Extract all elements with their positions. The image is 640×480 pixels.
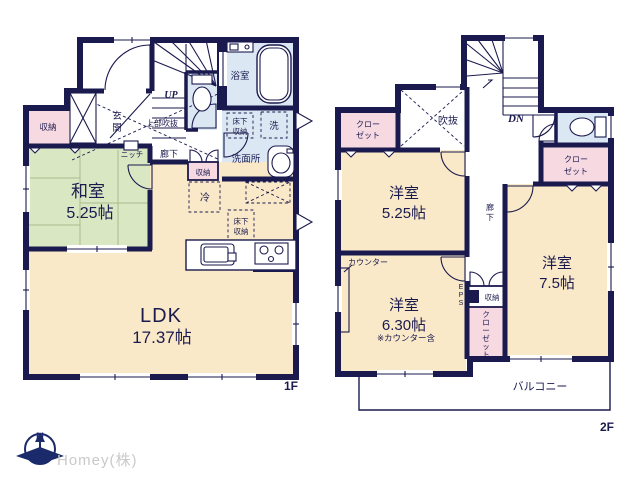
door-arrow-washroom xyxy=(296,112,312,130)
company-logo-text: Homey(株) xyxy=(57,452,138,469)
stairs-2f xyxy=(467,40,541,115)
closet-right-area xyxy=(541,147,611,183)
genkan-label-2: 関 xyxy=(112,123,122,134)
genkan-label-1: 玄 xyxy=(112,110,122,122)
niche-box xyxy=(124,141,138,150)
door-arrow-kitchen xyxy=(296,213,312,231)
washroom-label: 洗面所 xyxy=(232,153,261,165)
underfloor2-label-b: 収納 xyxy=(234,226,249,236)
fridge-label: 冷 xyxy=(200,191,210,204)
ldk-name: LDK xyxy=(140,305,182,327)
dn-label: DN xyxy=(507,113,525,125)
closet-v-label-6: ト xyxy=(482,350,490,359)
floorplan-drawing: 収納 玄 関 UP 上部吹抜 ニッチ 浴室 床下 収納 洗 洗面所 廊下 収納 … xyxy=(0,0,640,480)
counter-label: カウンター xyxy=(348,258,388,267)
toilet-2f-icon xyxy=(570,117,606,137)
toilet-1f-icon xyxy=(192,75,212,111)
underfloor2-label-a: 床下 xyxy=(234,216,249,226)
room525-size: 5.25帖 xyxy=(382,205,426,222)
floorplan-1f: 収納 玄 関 UP 上部吹抜 ニッチ 浴室 床下 収納 洗 洗面所 廊下 収納 … xyxy=(22,36,312,393)
storage-west-label: 収納 xyxy=(39,122,56,132)
closet-tl-label-2: ゼット xyxy=(356,130,380,140)
bath-label: 浴室 xyxy=(230,70,249,82)
closet-tl-area xyxy=(340,110,396,148)
ldk-size: 17.37帖 xyxy=(132,328,192,347)
washitsu-name: 和室 xyxy=(71,182,105,201)
room75-name: 洋室 xyxy=(542,255,572,272)
vanity-sink-icon xyxy=(268,146,294,177)
floorplan-2f: クロー ゼット 吹抜 DN クロー ゼット 洋室 5.25帖 廊 下 カウンター… xyxy=(334,34,615,434)
washitsu-size: 5.25帖 xyxy=(66,204,113,222)
floor-label-2f: 2F xyxy=(600,420,614,434)
up-label: UP xyxy=(164,90,178,101)
room75-size: 7.5帖 xyxy=(539,275,575,292)
eps-label-1: E xyxy=(459,284,464,291)
balcony-label: バルコニー xyxy=(513,380,568,393)
hallway-2f-label-2: 下 xyxy=(486,213,494,222)
floorplan-page: 収納 玄 関 UP 上部吹抜 ニッチ 浴室 床下 収納 洗 洗面所 廊下 収納 … xyxy=(0,0,640,480)
hallway-2f-label-1: 廊 xyxy=(486,202,494,212)
bathtub-icon xyxy=(257,45,291,103)
kitchen-counter xyxy=(186,240,296,270)
eps-label-2: P xyxy=(459,292,464,299)
compass-north-label: N xyxy=(36,431,44,443)
laundry-label: 洗 xyxy=(269,120,279,132)
eps-label-3: S xyxy=(459,300,464,307)
hall-closet-label: 収納 xyxy=(196,167,211,177)
room525-name: 洋室 xyxy=(389,185,419,202)
bath-counter-icon xyxy=(227,42,253,52)
room630-name: 洋室 xyxy=(389,297,419,314)
hallway-1f-label: 廊下 xyxy=(160,148,178,159)
closet-tl-label-1: クロー xyxy=(356,120,380,129)
room630-note: ※カウンター含 xyxy=(377,333,436,343)
underfloor1-label-a: 床下 xyxy=(233,116,248,126)
floor-label-1f: 1F xyxy=(284,379,298,393)
storage-2f-label: 収納 xyxy=(485,292,500,302)
room630-size: 6.30帖 xyxy=(382,317,426,334)
void-label: 吹抜 xyxy=(438,114,458,127)
closet-right-label-1: クロー xyxy=(564,155,588,164)
underfloor1-label-b: 収納 xyxy=(233,126,248,136)
upper-void-label: 上部吹抜 xyxy=(146,118,178,128)
niche-label: ニッチ xyxy=(121,150,144,159)
shoe-cabinet xyxy=(70,93,96,143)
closet-right-label-2: ゼット xyxy=(564,166,588,176)
